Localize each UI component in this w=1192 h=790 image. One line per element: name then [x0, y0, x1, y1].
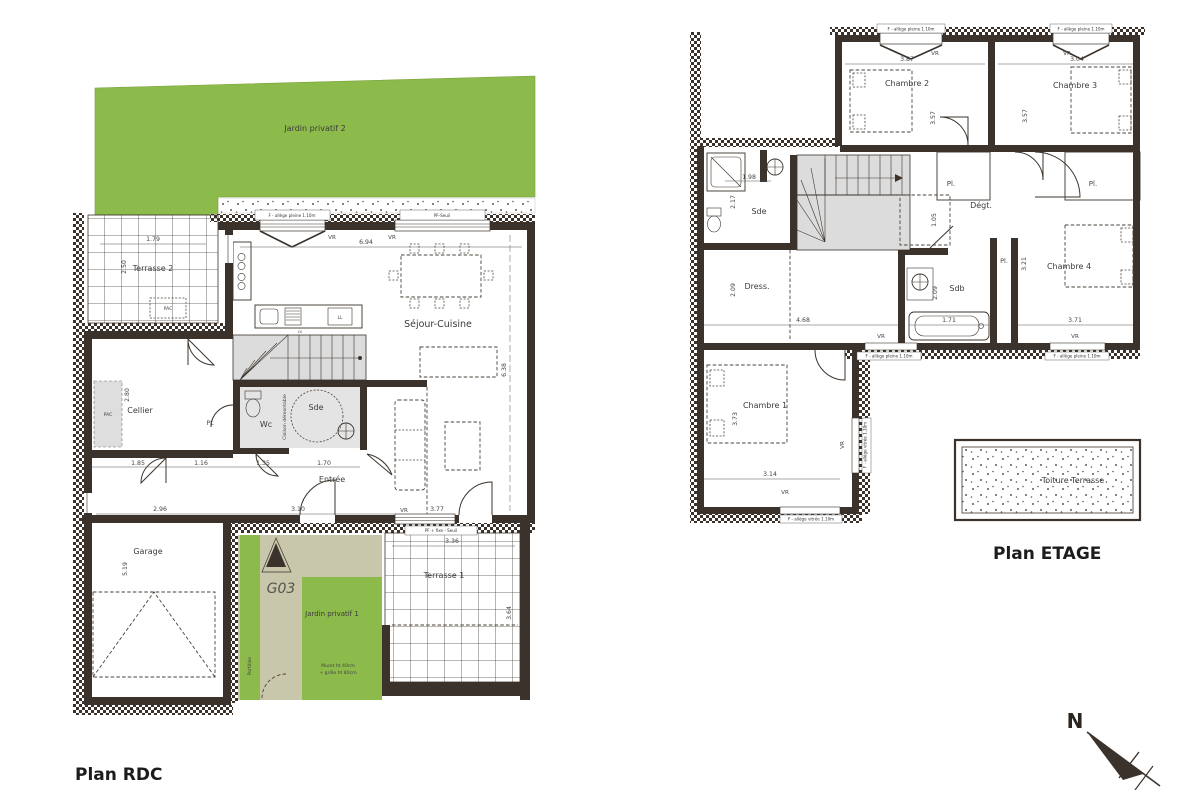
portillon-label: Portillon: [247, 657, 253, 676]
vr-label: VR: [1071, 334, 1079, 340]
pl-label: PL: [206, 420, 214, 427]
window1-label: F - allège pleine 1.10m: [268, 213, 315, 218]
window-ch3: F - allège pleine 1.10m: [1050, 24, 1112, 59]
north-arrow: N: [1035, 692, 1185, 790]
pl-label: Pl.: [947, 180, 955, 188]
window2-label: PF-Seuil: [434, 213, 450, 218]
vr-label: VR: [931, 51, 939, 57]
ch1-width-dim: 3.14: [763, 471, 777, 478]
cloison-label: Cloison démontable: [281, 394, 288, 440]
pl-label: Pl.: [1089, 180, 1097, 188]
pac-cellier-label: PAC: [104, 412, 113, 418]
kitchen-fixtures: LV LL: [225, 235, 362, 334]
toiture-label: Toiture Terrasse: [1041, 476, 1105, 485]
garden-private-2: Jardin privatif 2: [95, 76, 535, 215]
bath-dim: 1.71: [942, 317, 956, 324]
floorplan-sheet: Jardin privatif 2 Terrasse 2 1.79 2.50 P…: [0, 0, 1192, 790]
terrasse-2: Terrasse 2 1.79 2.50 PAC: [88, 215, 218, 323]
north-label: N: [1067, 709, 1084, 733]
terrasse1-height-dim: 3.64: [506, 606, 513, 620]
hall-dim: 4.68: [796, 317, 810, 324]
sde-label: Sde: [308, 403, 323, 412]
muret-label-1: Muret ht 40cm: [321, 663, 355, 669]
window3-label: PF + fixe - Seuil: [425, 528, 457, 533]
etage-window-label: F - allège pleine 1.10m: [1053, 354, 1100, 359]
etage-window-label: F - allège pleine 1.10m: [865, 354, 912, 359]
vr-label: VR: [877, 334, 885, 340]
south-window-dim: 3.77: [430, 506, 444, 513]
terrasse-1: Terrasse 1 3.36 3.64: [382, 523, 530, 700]
dressing: Dress. 2.09: [730, 250, 790, 340]
chambre2: Chambre 2 3.57: [850, 70, 968, 145]
sdb-height-dim: 2.09: [932, 286, 939, 300]
chambre4-label: Chambre 4: [1047, 262, 1091, 271]
sde-width-dim: 1.98: [742, 174, 756, 181]
dim-rows-rdc: 1.85 1.16 1.35 1.70 2.96 3.10: [90, 460, 395, 514]
cellier-height-dim: 2.80: [124, 388, 131, 402]
vr-label: VR: [328, 235, 336, 241]
pl-label: Pl.: [1000, 257, 1008, 265]
degt-label: Dégt.: [970, 200, 992, 210]
garage-height-dim: 5.19: [122, 562, 129, 576]
toiture-terrasse: Toiture Terrasse: [955, 440, 1140, 520]
sde-height-dim: 2.17: [730, 195, 737, 209]
etage-window-label: F - allège pleine 1.10m: [887, 27, 934, 32]
stairs-etage: [797, 155, 910, 250]
cellier-label: Cellier: [127, 406, 153, 415]
terrasse1-width-dim: 3.36: [445, 538, 459, 545]
etage-window-vitree-label: F - allège vitrée 1.10m: [788, 517, 834, 522]
vr-label: VR: [781, 490, 789, 496]
chambre1-label: Chambre 1: [743, 401, 787, 410]
bottom-dims-etage: 4.68 1.71 3.71 VR VR F - allège pleine 1…: [704, 317, 1133, 360]
salle-de-bain: Sdb 2.09: [907, 268, 989, 340]
chambre4: Chambre 4 3.21: [1021, 225, 1133, 287]
muret-label-2: + grille ht 80cm: [319, 670, 357, 676]
sejour-label: Séjour-Cuisine: [404, 319, 472, 330]
ch4-height-dim: 3.21: [1021, 257, 1028, 271]
etage-window-vitree-label: F - allège vitrée 1.10m: [863, 422, 868, 468]
closets: Pl. Pl. Pl.: [937, 152, 1140, 265]
sde-etage-label: Sde: [751, 207, 766, 216]
lv-label: LV: [298, 329, 303, 334]
entree-width-dim: 3.10: [291, 506, 305, 513]
g03-path: G03 Jardin privatif 1 Portillon Muret ht…: [238, 535, 382, 700]
sde-etage: Sde 1.98 2.17: [707, 153, 783, 232]
terrasse2-height-dim: 2.50: [121, 260, 128, 274]
dress-label: Dress.: [744, 282, 769, 291]
dim-135: 1.35: [256, 460, 270, 467]
plan-etage-title: Plan ETAGE: [993, 544, 1101, 564]
sejour-height-dim: 6.38: [501, 363, 508, 377]
ch2-width-dim: 3.87: [900, 56, 914, 63]
window-north-1: F - allège pleine 1.10m: [255, 210, 330, 247]
vr-label: VR: [388, 235, 396, 241]
sejour-width-dim: 6.94: [359, 239, 373, 246]
garage-width-dim: 2.96: [153, 506, 167, 513]
vr-label: VR: [400, 508, 408, 514]
ch1-height-dim: 3.73: [732, 412, 739, 426]
plan-rdc-title: Plan RDC: [75, 765, 162, 785]
plan-rdc: Jardin privatif 2 Terrasse 2 1.79 2.50 P…: [70, 65, 550, 785]
ch4-width-dim: 3.71: [1068, 317, 1082, 324]
unit-number-label: G03: [267, 581, 296, 597]
dim-185: 1.85: [131, 460, 145, 467]
sdb-label: Sdb: [949, 284, 964, 293]
etage-window-label: F - allège pleine 1.10m: [1057, 27, 1104, 32]
ll-label: LL: [337, 315, 343, 321]
vr-label: VR: [840, 441, 846, 449]
pac-terrasse-label: PAC: [164, 306, 173, 312]
jardin2-label: Jardin privatif 2: [283, 124, 345, 133]
terrasse2-width-dim: 1.79: [146, 236, 160, 243]
chambre1: Chambre 1 3.73 3.14 VR F - allège vitrée…: [704, 350, 871, 523]
trappe-dim: 1.05: [931, 213, 938, 227]
dress-height-dim: 2.09: [730, 283, 737, 297]
terrasse2-label: Terrasse 2: [132, 264, 174, 273]
ch2-height-dim: 3.57: [930, 111, 937, 125]
dim-170: 1.70: [317, 460, 331, 467]
plan-etage: F - allège pleine 1.10m F - allège plein…: [685, 20, 1155, 580]
chambre2-label: Chambre 2: [885, 79, 929, 88]
garage-label: Garage: [133, 547, 162, 556]
sejour-furniture: Séjour-Cuisine: [389, 244, 497, 490]
wc-label: Wc: [260, 420, 272, 429]
terrasse1-label: Terrasse 1: [423, 571, 465, 580]
ch3-width-dim: 3.04: [1070, 56, 1084, 63]
dim-116: 1.16: [194, 460, 208, 467]
jardin1-label: Jardin privatif 1: [304, 610, 359, 618]
chambre3-label: Chambre 3: [1053, 81, 1097, 90]
window-north-2: PF-Seuil: [395, 210, 490, 231]
chambre3: Chambre 3 3.57: [1015, 67, 1131, 180]
ch3-height-dim: 3.57: [1022, 109, 1029, 123]
